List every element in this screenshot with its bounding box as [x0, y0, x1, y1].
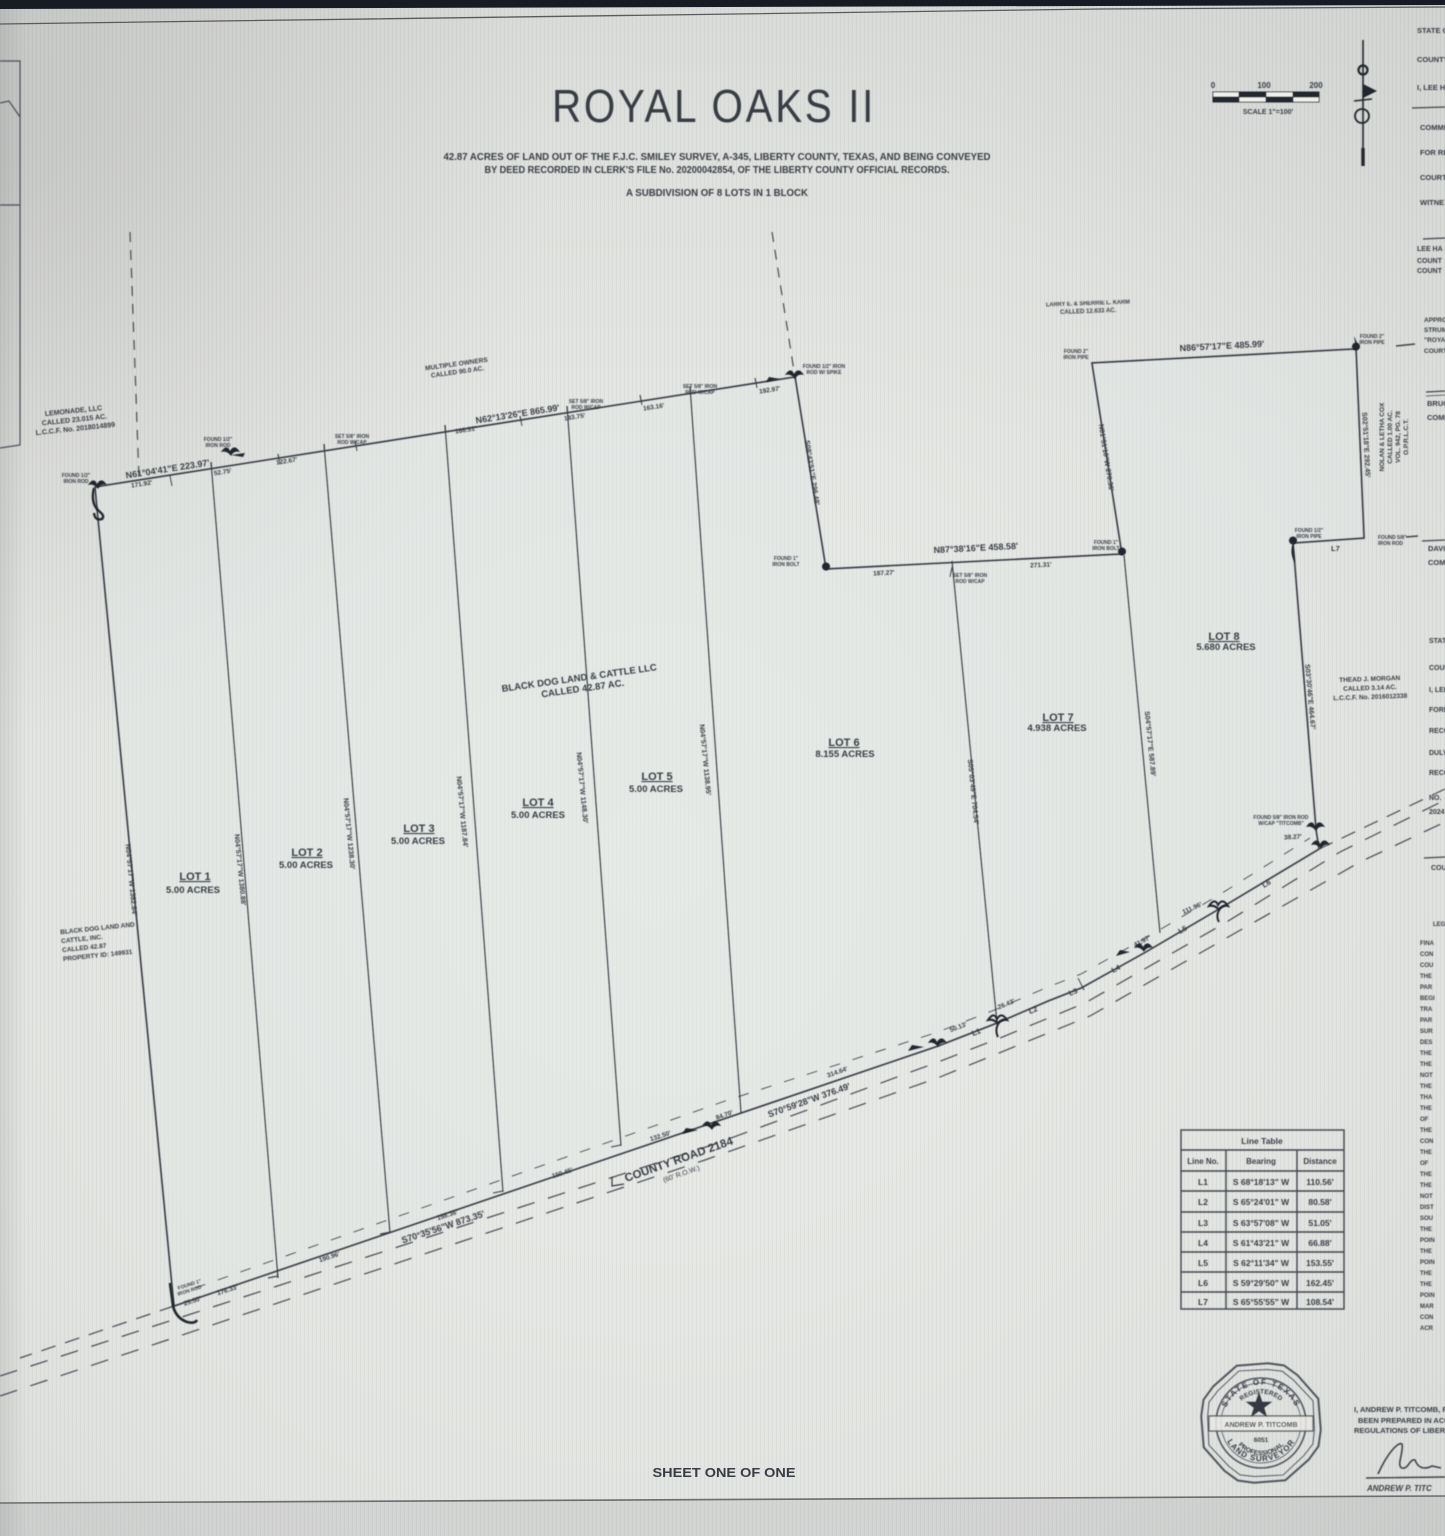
svg-text:Bearing: Bearing	[1246, 1157, 1276, 1166]
svg-text:IRON ROD: IRON ROD	[1378, 541, 1403, 547]
svg-text:ANDREW P. TITC: ANDREW P. TITC	[1366, 1484, 1432, 1493]
svg-text:LOT 3: LOT 3	[403, 823, 434, 835]
svg-text:PAR: PAR	[1420, 1018, 1433, 1024]
svg-text:8.155 ACRES: 8.155 ACRES	[815, 749, 874, 760]
svg-text:POIN: POIN	[1420, 1238, 1435, 1244]
svg-text:271.31': 271.31'	[1030, 561, 1052, 569]
svg-text:DES: DES	[1420, 1040, 1432, 1046]
svg-text:W/CAP "TITCOMB": W/CAP "TITCOMB"	[1258, 821, 1304, 827]
svg-text:O.P.R.L.C.T.: O.P.R.L.C.T.	[1403, 419, 1410, 455]
svg-text:THE: THE	[1420, 1271, 1432, 1277]
svg-text:COUN: COUN	[1429, 665, 1445, 672]
svg-text:110.56': 110.56'	[1306, 1177, 1334, 1187]
svg-text:ROD W/CAP: ROD W/CAP	[955, 579, 985, 585]
svg-text:L1: L1	[1198, 1177, 1208, 1187]
svg-text:A SUBDIVISION OF 8 LOTS IN 1 B: A SUBDIVISION OF 8 LOTS IN 1 BLOCK	[626, 188, 809, 199]
svg-text:THE: THE	[1420, 1084, 1432, 1090]
svg-text:CON: CON	[1420, 952, 1433, 958]
svg-text:SCALE 1"=100': SCALE 1"=100'	[1243, 109, 1294, 116]
svg-text:COURT: COURT	[1420, 173, 1445, 182]
svg-text:ACR: ACR	[1420, 1326, 1434, 1332]
svg-text:STRUM: STRUM	[1424, 327, 1445, 334]
svg-text:BRUC: BRUC	[1427, 399, 1445, 408]
svg-text:STATE: STATE	[1429, 638, 1445, 645]
svg-text:6051: 6051	[1254, 1437, 1269, 1444]
svg-text:COUNT: COUNT	[1417, 258, 1443, 265]
svg-text:66.88': 66.88'	[1308, 1238, 1331, 1248]
svg-text:STATE O: STATE O	[1417, 26, 1445, 35]
svg-text:NOLAN & LETHA COX: NOLAN & LETHA COX	[1379, 402, 1386, 471]
svg-text:THE: THE	[1420, 1051, 1432, 1057]
svg-text:BEEN PREPARED IN ACC: BEEN PREPARED IN ACC	[1358, 1416, 1445, 1425]
svg-text:80.58': 80.58'	[1308, 1197, 1331, 1207]
svg-text:COUNTY: COUNTY	[1417, 55, 1445, 64]
svg-text:DULY: DULY	[1429, 750, 1445, 757]
svg-text:POIN: POIN	[1420, 1260, 1435, 1266]
svg-text:BEGI: BEGI	[1420, 996, 1435, 1002]
svg-text:162.45': 162.45'	[1306, 1278, 1334, 1288]
svg-text:RECOR: RECOR	[1429, 728, 1445, 735]
svg-text:L7: L7	[1331, 544, 1340, 553]
svg-text:NO.: NO.	[1429, 795, 1442, 802]
svg-text:S 68°18'13" W: S 68°18'13" W	[1233, 1177, 1290, 1187]
svg-text:S 62°11'34" W: S 62°11'34" W	[1233, 1258, 1290, 1268]
svg-text:L2: L2	[1198, 1197, 1208, 1207]
svg-text:CON: CON	[1420, 1315, 1433, 1321]
svg-text:OF: OF	[1420, 1161, 1429, 1167]
svg-text:SUR: SUR	[1420, 1029, 1433, 1035]
svg-text:THE: THE	[1420, 1128, 1432, 1134]
svg-text:VOL. 942, PG. 78: VOL. 942, PG. 78	[1395, 411, 1402, 463]
svg-text:"ROYA: "ROYA	[1424, 337, 1445, 344]
svg-text:0: 0	[1211, 81, 1216, 90]
svg-text:POIN: POIN	[1420, 1293, 1435, 1299]
svg-text:COU: COU	[1420, 963, 1433, 969]
svg-text:SHEET ONE OF ONE: SHEET ONE OF ONE	[653, 1465, 796, 1480]
svg-text:THE: THE	[1420, 1249, 1432, 1255]
svg-text:NOT: NOT	[1420, 1073, 1433, 1079]
svg-text:5.00 ACRES: 5.00 ACRES	[279, 860, 333, 871]
svg-text:S 61°43'21" W: S 61°43'21" W	[1233, 1238, 1290, 1248]
svg-text:LOT 6: LOT 6	[828, 737, 859, 749]
svg-text:2024: 2024	[1429, 809, 1445, 816]
svg-text:LEE HA: LEE HA	[1417, 246, 1443, 253]
svg-text:S 65°24'01" W: S 65°24'01" W	[1233, 1197, 1290, 1207]
svg-text:THE: THE	[1420, 1282, 1432, 1288]
svg-text:S 59°29'50" W: S 59°29'50" W	[1233, 1278, 1290, 1288]
svg-text:THE: THE	[1420, 1150, 1432, 1156]
svg-text:IRON BOLT: IRON BOLT	[772, 562, 799, 568]
svg-text:5.00 ACRES: 5.00 ACRES	[391, 836, 445, 847]
svg-text:FOR RE: FOR RE	[1420, 148, 1445, 157]
svg-text:I, ANDREW P. TITCOMB, R: I, ANDREW P. TITCOMB, R	[1354, 1405, 1445, 1414]
svg-text:L7: L7	[1198, 1297, 1208, 1307]
svg-text:THE: THE	[1420, 1062, 1432, 1068]
svg-text:BY DEED RECORDED IN CLERK'S FI: BY DEED RECORDED IN CLERK'S FILE No. 202…	[485, 165, 950, 176]
svg-text:TRA: TRA	[1420, 1007, 1433, 1013]
svg-text:COUNT: COUNT	[1417, 268, 1443, 275]
svg-text:5.00 ACRES: 5.00 ACRES	[511, 810, 565, 821]
svg-text:Line No.: Line No.	[1187, 1157, 1219, 1166]
svg-text:42.87 ACRES OF LAND OUT OF THE: 42.87 ACRES OF LAND OUT OF THE F.J.C. SM…	[444, 152, 991, 163]
svg-text:153.55': 153.55'	[1306, 1258, 1334, 1268]
svg-text:100: 100	[1257, 81, 1271, 90]
svg-text:THE: THE	[1420, 1227, 1432, 1233]
svg-text:5.680 ACRES: 5.680 ACRES	[1196, 642, 1255, 653]
svg-text:L6: L6	[1198, 1278, 1208, 1288]
svg-text:38.27': 38.27'	[1284, 834, 1303, 842]
svg-text:L3: L3	[1198, 1218, 1208, 1228]
svg-text:COMMI: COMMI	[1420, 123, 1445, 132]
svg-text:THE: THE	[1420, 974, 1432, 980]
svg-text:COUN: COUN	[1431, 865, 1445, 872]
svg-text:IRON PIPE: IRON PIPE	[1063, 355, 1089, 361]
svg-text:L5: L5	[1198, 1258, 1208, 1268]
svg-text:COMM: COMM	[1428, 558, 1445, 567]
svg-text:5.00 ACRES: 5.00 ACRES	[629, 784, 683, 795]
svg-text:WITNE: WITNE	[1420, 198, 1444, 207]
svg-text:DAVI: DAVI	[1428, 544, 1445, 553]
svg-text:200: 200	[1309, 81, 1323, 90]
svg-text:ROD W/CAP: ROD W/CAP	[337, 440, 367, 446]
svg-text:SOU: SOU	[1420, 1216, 1433, 1222]
svg-text:LOT 1: LOT 1	[179, 871, 210, 883]
svg-text:COMM: COMM	[1427, 413, 1445, 422]
svg-text:108.54': 108.54'	[1306, 1297, 1334, 1307]
svg-text:APPRO: APPRO	[1424, 317, 1445, 324]
svg-text:ROD W/CAP: ROD W/CAP	[571, 405, 601, 411]
svg-text:IRON PIPE: IRON PIPE	[1296, 534, 1322, 540]
svg-text:CALLED 1.00 AC.: CALLED 1.00 AC.	[1387, 410, 1394, 464]
svg-text:Distance: Distance	[1303, 1157, 1337, 1166]
svg-text:DIST: DIST	[1420, 1205, 1434, 1211]
svg-text:THE: THE	[1420, 1106, 1432, 1112]
svg-text:IRON BOLT: IRON BOLT	[1092, 546, 1119, 552]
svg-text:LEGA: LEGA	[1433, 922, 1445, 928]
svg-text:5.00 ACRES: 5.00 ACRES	[166, 885, 220, 896]
svg-text:IRON ROD: IRON ROD	[64, 479, 89, 485]
svg-text:LOT 2: LOT 2	[291, 847, 322, 859]
svg-text:OF: OF	[1420, 1117, 1429, 1123]
svg-text:FOREG: FOREG	[1429, 707, 1445, 714]
svg-text:THE: THE	[1420, 1172, 1432, 1178]
svg-text:COURT: COURT	[1424, 348, 1445, 355]
svg-text:S 63°57'08" W: S 63°57'08" W	[1233, 1218, 1290, 1228]
svg-text:51.05': 51.05'	[1308, 1218, 1331, 1228]
svg-text:LOT 4: LOT 4	[522, 797, 554, 809]
svg-text:PAR: PAR	[1420, 985, 1433, 991]
svg-text:FINA: FINA	[1420, 941, 1435, 947]
svg-text:ROD W/ SPIKE: ROD W/ SPIKE	[806, 370, 842, 376]
svg-text:THE: THE	[1420, 1183, 1432, 1189]
svg-text:ROYAL OAKS II: ROYAL OAKS II	[552, 80, 876, 132]
svg-text:L4: L4	[1198, 1238, 1208, 1248]
svg-text:REGULATIONS OF LIBERT: REGULATIONS OF LIBERT	[1354, 1426, 1445, 1435]
svg-text:NOT: NOT	[1420, 1194, 1433, 1200]
svg-text:THA: THA	[1420, 1095, 1433, 1101]
svg-text:RECOR: RECOR	[1429, 770, 1445, 777]
svg-text:IRON PIPE: IRON PIPE	[1359, 340, 1385, 346]
svg-text:ANDREW P. TITCOMB: ANDREW P. TITCOMB	[1225, 1422, 1298, 1429]
svg-text:187.27': 187.27'	[873, 569, 895, 577]
svg-text:CON: CON	[1420, 1139, 1433, 1145]
svg-text:LOT 5: LOT 5	[641, 771, 672, 783]
svg-text:I, LEE: I, LEE	[1429, 687, 1445, 694]
svg-text:Line Table: Line Table	[1241, 1136, 1283, 1146]
svg-text:ROD W/CAP: ROD W/CAP	[685, 390, 715, 396]
svg-text:4.938 ACRES: 4.938 ACRES	[1027, 723, 1086, 734]
svg-text:MAR: MAR	[1420, 1304, 1434, 1310]
svg-text:I, LEE H: I, LEE H	[1417, 83, 1445, 92]
svg-text:S 65°55'55" W: S 65°55'55" W	[1233, 1297, 1290, 1307]
